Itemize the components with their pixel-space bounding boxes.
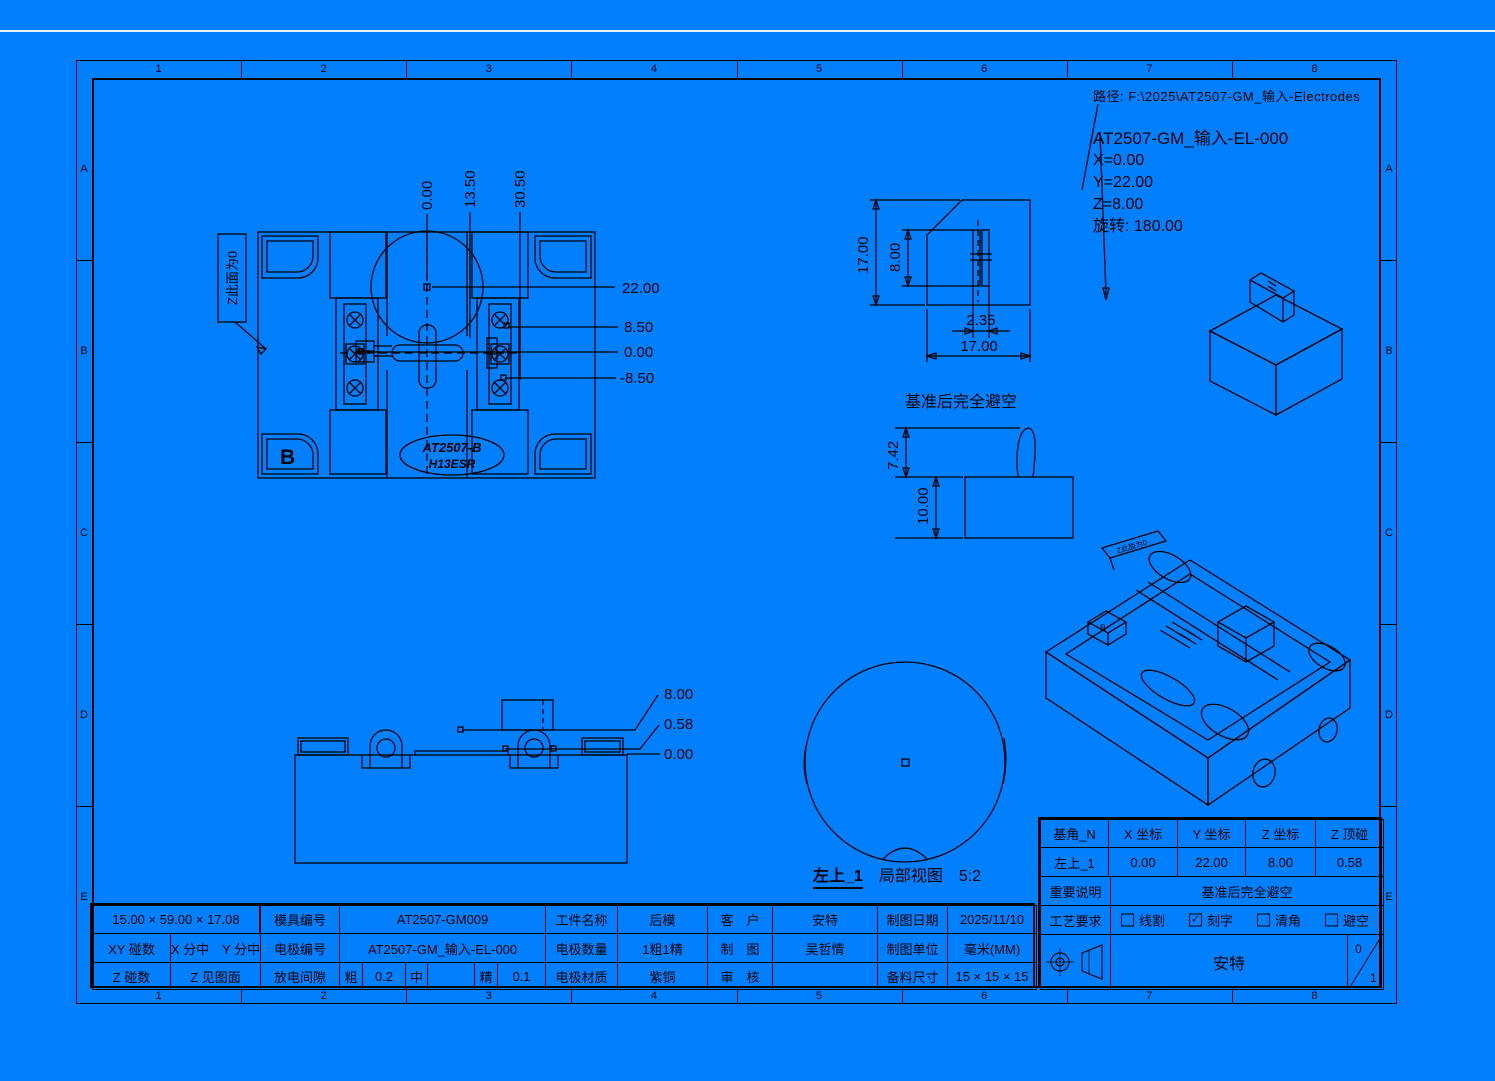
iso-corner-mark: B xyxy=(1100,623,1106,633)
projection-symbol-cell xyxy=(1040,934,1111,990)
drafter-label: 制 图 xyxy=(707,933,773,963)
plan-face-note: Z此面为0 xyxy=(218,234,266,354)
zone-separator xyxy=(76,624,92,625)
zone-label: 3 xyxy=(486,990,492,1002)
dim-label: 8.50 xyxy=(624,319,653,336)
zone-label: E xyxy=(80,891,87,903)
option-wirecut: 线割 xyxy=(1121,911,1165,930)
detail-kind: 局部视图 xyxy=(879,862,943,886)
gap-fine-value: 0.1 xyxy=(497,962,546,990)
front-dimensions: 17.00 8.00 2.35 17.00 xyxy=(855,200,1030,362)
option-clearance: 避空 xyxy=(1325,911,1369,930)
qty-label: 电极数量 xyxy=(545,933,618,963)
datum-header: X 坐标 xyxy=(1108,819,1178,848)
part-name-value: 后模 xyxy=(617,905,708,934)
zone-separator xyxy=(1381,442,1397,443)
zone-label: 5 xyxy=(816,63,822,75)
front-view: 17.00 8.00 2.35 17.00 xyxy=(840,190,1050,380)
material-value: 紫铜 xyxy=(617,962,708,990)
zone-label: 1 xyxy=(156,63,162,75)
dim-label: 8.00 xyxy=(664,686,693,703)
zone-label: D xyxy=(1385,709,1393,721)
detail-scale: 5:2 xyxy=(959,868,981,886)
process-options: 线割 ✓ 刻字 清角 避空 xyxy=(1110,905,1384,935)
gap-rough-value: 0.2 xyxy=(362,962,406,990)
zone-separator xyxy=(571,60,572,78)
gap-mid-value xyxy=(427,962,475,990)
option-corner: 清角 xyxy=(1257,911,1301,930)
leader-lines xyxy=(1082,104,1109,300)
z-value: Z 见图面 xyxy=(170,962,261,990)
zone-separator xyxy=(1232,988,1233,1004)
checker-value xyxy=(772,962,878,990)
detail-view xyxy=(795,650,1030,880)
zone-label: 7 xyxy=(1146,63,1152,75)
zone-label: 8 xyxy=(1311,990,1317,1002)
dim-label: 0.00 xyxy=(624,344,653,361)
zone-separator xyxy=(241,988,242,1004)
engrave-line2: H13ESR xyxy=(429,457,476,471)
electrode-no-label: 电极编号 xyxy=(260,933,340,963)
zone-separator xyxy=(76,806,92,807)
detail-caption: 左上_1 局部视图 5:2 xyxy=(813,862,981,889)
dim-label: 0.00 xyxy=(664,746,693,763)
zone-label: 5 xyxy=(816,990,822,1002)
datum-value: 22.00 xyxy=(1177,847,1246,877)
front-body xyxy=(927,200,1030,305)
checker-label: 审 核 xyxy=(707,962,773,990)
engrave-line1: AT2507-B xyxy=(421,440,481,455)
zone-separator xyxy=(1067,60,1068,78)
dim-label: 13.50 xyxy=(462,170,479,208)
dim-label: 7.42 xyxy=(885,441,902,470)
datum-value: 8.00 xyxy=(1245,847,1316,877)
option-label: 避空 xyxy=(1343,911,1369,930)
face-note-label: Z此面为0 xyxy=(225,251,240,305)
datum-header: Z 顶碰 xyxy=(1315,819,1384,848)
zone-separator xyxy=(406,988,407,1004)
z-label: Z 碰数 xyxy=(92,962,171,990)
zone-label: 6 xyxy=(981,990,987,1002)
zone-separator xyxy=(737,60,738,78)
zone-label: 1 xyxy=(156,990,162,1002)
sheet-rev-cell: 0 1 xyxy=(1347,934,1384,990)
top-separator-line xyxy=(0,30,1495,32)
clearance-title: 基准后完全避空 xyxy=(905,393,1017,411)
zone-label: C xyxy=(80,527,88,539)
date-value: 2025/11/10 xyxy=(947,905,1037,934)
gap-label: 放电间隙 xyxy=(260,962,340,990)
unit-label: 制图单位 xyxy=(877,933,948,963)
zone-separator xyxy=(76,260,92,261)
dim-label: -8.50 xyxy=(620,370,654,387)
iso-small-view xyxy=(1198,253,1363,418)
zone-label: E xyxy=(1385,891,1392,903)
dim-label: 17.00 xyxy=(855,236,872,274)
note-value: 基准后完全避空 xyxy=(1110,876,1384,906)
zone-label: B xyxy=(80,345,87,357)
zone-separator xyxy=(902,988,903,1004)
clearance-dimensions: 7.42 10.00 xyxy=(885,428,1020,538)
iso-large-geometry: B Z此面为0 xyxy=(1046,531,1350,805)
zone-label: D xyxy=(80,709,88,721)
mold-no-label: 模具编号 xyxy=(260,905,340,934)
gap-fine-label: 精 xyxy=(474,962,498,990)
checkbox: ✓ xyxy=(1189,914,1202,927)
zone-label: A xyxy=(1385,163,1392,175)
part-name-label: 工件名称 xyxy=(545,905,618,934)
detail-name: 左上_1 xyxy=(813,862,863,889)
zone-label: 2 xyxy=(321,63,327,75)
checkbox xyxy=(1257,914,1270,927)
zone-label: 4 xyxy=(651,990,657,1002)
mold-no-value: AT2507-GM009 xyxy=(339,905,546,934)
plan-view: Z此面为0 xyxy=(210,148,680,498)
datum-header: Z 坐标 xyxy=(1245,819,1316,848)
sheet-bottom: 1 xyxy=(1370,971,1377,985)
zone-label: C xyxy=(1385,527,1393,539)
datum-value: 左上_1 xyxy=(1040,847,1109,877)
dim-label: 0.00 xyxy=(419,181,436,210)
xy-value: X 分中 Y 分中 xyxy=(170,933,261,963)
sheet-top: 0 xyxy=(1355,942,1362,956)
zone-separator xyxy=(1381,806,1397,807)
dim-label: 30.50 xyxy=(512,170,529,208)
customer-label: 客 户 xyxy=(707,905,773,934)
datum-value: 0.00 xyxy=(1108,847,1178,877)
stock-size-cell: 15.00 × 59.00 × 17.08 xyxy=(92,905,260,934)
zone-separator xyxy=(571,988,572,1004)
note-label: 重要说明 xyxy=(1040,876,1111,906)
zone-separator xyxy=(76,442,92,443)
dim-label: 17.00 xyxy=(960,338,998,355)
part-info-leaders xyxy=(1072,92,1142,307)
zone-separator xyxy=(1232,60,1233,78)
clearance-body xyxy=(965,428,1073,538)
datum-header: Y 坐标 xyxy=(1177,819,1246,848)
zone-separator xyxy=(241,60,242,78)
cad-sheet: { "colors": {"bg":"#0080FF","line":"#000… xyxy=(0,0,1495,1081)
zone-separator xyxy=(1381,260,1397,261)
sheet-rev-diagonal: 0 1 xyxy=(1348,935,1383,989)
qty-value: 1粗1精 xyxy=(617,933,708,963)
title-block: 15.00 × 59.00 × 17.08 模具编号 AT2507-GM009 … xyxy=(90,903,1035,988)
stock-label: 备料尺寸 xyxy=(877,962,948,990)
gap-rough-label: 粗 xyxy=(339,962,363,990)
zone-label: 2 xyxy=(321,990,327,1002)
xy-label: XY 碰数 xyxy=(92,933,171,963)
option-label: 清角 xyxy=(1275,911,1301,930)
datum-value: 0.58 xyxy=(1315,847,1384,877)
checkbox xyxy=(1325,914,1338,927)
dim-label: 0.58 xyxy=(664,716,693,733)
zone-label: 8 xyxy=(1311,63,1317,75)
checkbox xyxy=(1121,914,1134,927)
iso-small-geometry xyxy=(1210,273,1342,415)
zone-separator xyxy=(902,60,903,78)
drafter-value: 吴哲情 xyxy=(772,933,878,963)
zone-separator xyxy=(737,988,738,1004)
zone-label: 7 xyxy=(1146,990,1152,1002)
material-label: 电极材质 xyxy=(545,962,618,990)
datum-table: 基角_N X 坐标 Y 坐标 Z 坐标 Z 顶碰 左上_1 0.00 22.00… xyxy=(1038,817,1382,988)
option-engrave: ✓ 刻字 xyxy=(1189,911,1233,930)
dim-label: 10.00 xyxy=(915,487,932,525)
date-label: 制图日期 xyxy=(877,905,948,934)
dim-label: 2.35 xyxy=(966,312,995,329)
plan-right-rail xyxy=(477,298,519,410)
corner-mark-b: B xyxy=(280,446,295,469)
side-view: 8.00 0.58 0.00 xyxy=(290,668,735,873)
detail-geometry xyxy=(804,662,1006,862)
option-label: 刻字 xyxy=(1207,911,1233,930)
unit-value: 毫米(MM) xyxy=(947,933,1037,963)
zone-separator xyxy=(406,60,407,78)
zone-label: 6 xyxy=(981,63,987,75)
zone-separator xyxy=(1067,988,1068,1004)
iso-large-view: B Z此面为0 xyxy=(1040,530,1375,815)
stock-value: 15 × 15 × 15 xyxy=(947,962,1037,990)
plan-left-rail xyxy=(336,298,378,410)
electrode-no-value: AT2507-GM_输入-EL-000 xyxy=(339,933,546,963)
gap-mid-label: 中 xyxy=(405,962,428,990)
customer-value: 安特 xyxy=(772,905,878,934)
process-label: 工艺要求 xyxy=(1040,905,1111,935)
zone-label: B xyxy=(1385,345,1392,357)
side-body xyxy=(295,700,627,863)
projection-symbol-icon xyxy=(1042,936,1110,988)
zone-label: A xyxy=(80,163,87,175)
datum-header: 基角_N xyxy=(1040,819,1109,848)
option-label: 线割 xyxy=(1139,911,1165,930)
zone-label: 4 xyxy=(651,63,657,75)
dim-label: 22.00 xyxy=(622,280,660,297)
zone-label: 3 xyxy=(486,63,492,75)
zone-separator xyxy=(1381,624,1397,625)
company-cell: 安特 xyxy=(1110,934,1348,990)
dim-label: 8.00 xyxy=(887,243,904,272)
